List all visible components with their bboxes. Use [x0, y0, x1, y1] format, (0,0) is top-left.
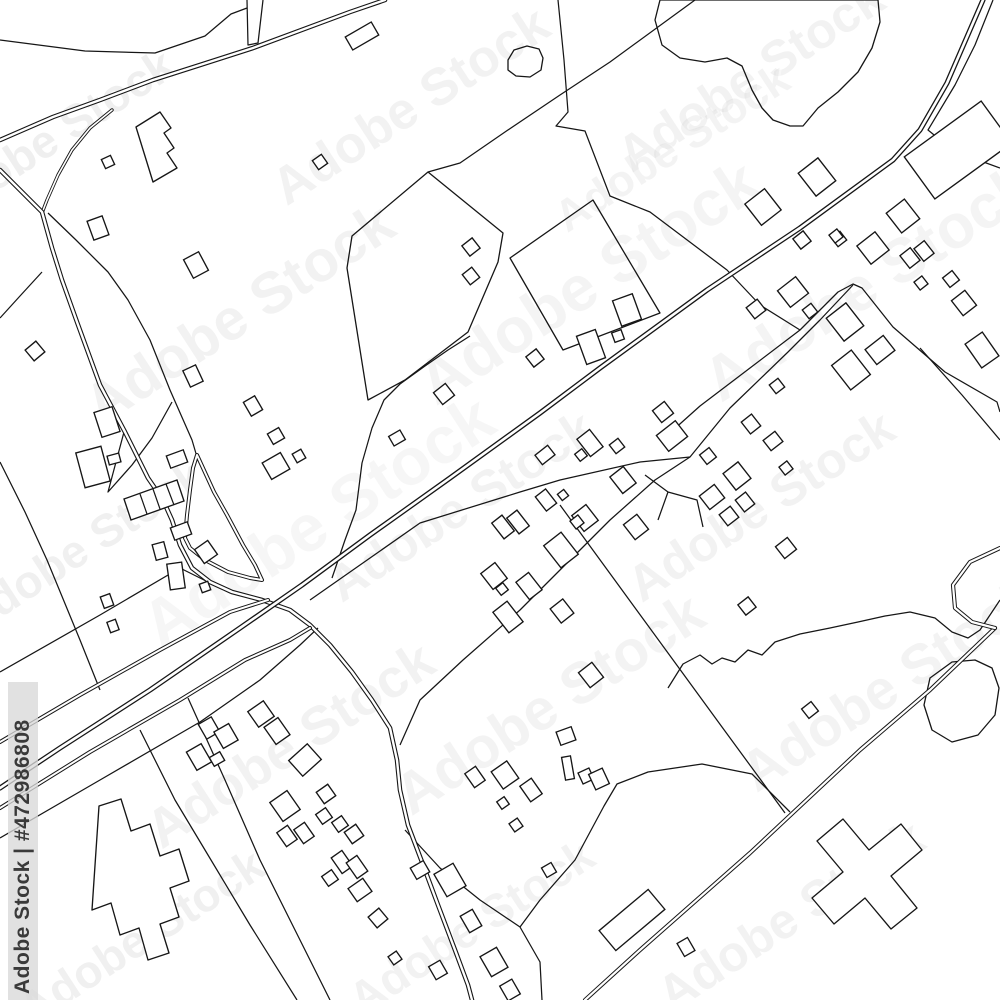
building — [798, 158, 836, 196]
building — [262, 453, 290, 480]
building — [741, 414, 760, 434]
watermark-tile: Adobe StockAdobe Stock — [617, 398, 906, 614]
building — [167, 562, 185, 590]
building — [76, 446, 110, 488]
building — [497, 797, 510, 810]
building — [152, 542, 168, 561]
building — [107, 619, 119, 632]
map-canvas: Adobe StockAdobe StockAdobe StockAdobe S… — [0, 0, 1000, 1000]
building — [763, 431, 783, 450]
svg-text:Adobe Stock: Adobe Stock — [617, 399, 904, 613]
building — [267, 428, 284, 445]
building — [294, 822, 314, 843]
watermark-tile: Adobe StockAdobe Stock — [383, 579, 718, 829]
building — [562, 756, 575, 780]
building — [965, 332, 999, 368]
building — [332, 816, 349, 833]
building — [609, 438, 624, 453]
watermark-tile: Adobe StockAdobe Stock — [729, 563, 1000, 805]
left-parcel-line-a — [0, 272, 42, 318]
building — [107, 453, 121, 465]
building — [243, 396, 262, 416]
curvy-top-left — [0, 8, 247, 53]
building — [865, 335, 895, 364]
building — [462, 238, 480, 256]
svg-text:Adobe Stock: Adobe Stock — [262, 0, 560, 217]
building — [544, 532, 579, 568]
building — [623, 514, 648, 539]
building — [101, 155, 114, 168]
building — [589, 768, 610, 790]
svg-text:Adobe Stock: Adobe Stock — [73, 189, 406, 437]
svg-text:Adobe Stock: Adobe Stock — [383, 579, 716, 827]
building — [775, 537, 796, 558]
building — [480, 947, 508, 976]
building — [832, 350, 871, 390]
building — [493, 601, 523, 633]
building — [700, 448, 717, 465]
building — [270, 791, 300, 822]
building — [87, 216, 109, 240]
stock-map-image: Adobe StockAdobe StockAdobe StockAdobe S… — [0, 0, 1000, 1000]
narrow-strip-top — [247, 0, 263, 45]
stock-id-watermark: Adobe Stock | #472986808 — [8, 682, 38, 1000]
svg-text:Adobe Stock: Adobe Stock — [729, 564, 1000, 804]
building — [316, 784, 335, 803]
building — [500, 979, 521, 1000]
building — [612, 330, 625, 343]
building — [462, 267, 479, 285]
l-house-top-left — [136, 112, 177, 182]
building — [652, 401, 673, 422]
building — [520, 778, 542, 802]
building — [535, 489, 556, 511]
building — [368, 908, 388, 928]
building — [557, 489, 568, 500]
building — [292, 449, 306, 463]
building — [550, 599, 574, 623]
building — [25, 341, 45, 361]
building — [613, 294, 642, 327]
building — [184, 252, 209, 279]
building — [656, 421, 687, 452]
building — [348, 878, 372, 901]
building — [344, 824, 363, 843]
building — [322, 870, 339, 887]
building — [277, 825, 297, 846]
building — [316, 808, 333, 825]
building — [516, 572, 542, 599]
building — [951, 290, 976, 315]
building — [509, 818, 523, 832]
building — [434, 863, 466, 897]
building — [100, 594, 114, 609]
building — [610, 466, 636, 493]
building — [738, 597, 756, 615]
svg-text:Adobe Stock: Adobe Stock — [135, 629, 445, 860]
driveway-fork-b — [658, 492, 668, 520]
building — [345, 22, 378, 50]
building — [346, 855, 368, 878]
watermark-tile: Adobe StockAdobe Stock — [135, 629, 447, 862]
building — [576, 329, 605, 364]
building — [199, 581, 211, 593]
watermark-tile: Adobe StockAdobe Stock — [73, 189, 408, 439]
building — [599, 889, 665, 950]
stock-id-watermark-text: Adobe Stock | #472986808 — [11, 719, 34, 994]
